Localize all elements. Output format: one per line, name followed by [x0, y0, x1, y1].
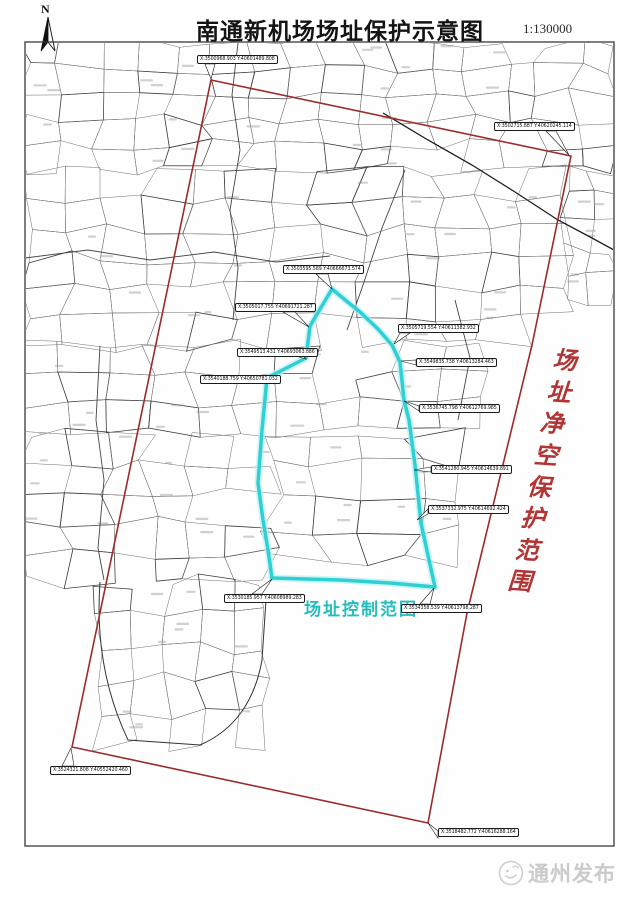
coordinate-callout-control: X:3503595.589 Y:40666673.574	[283, 265, 364, 274]
watermark: 通州发布	[498, 858, 616, 888]
coordinate-callout-clearance: X:3500968.903 Y:40601489.808	[197, 55, 278, 64]
coordinate-callout-control: X:3549513.431 Y:40693063.886	[237, 348, 318, 357]
clearance-zone-label-char: 围	[507, 561, 533, 598]
coordinate-callout-control: X:3536745.798 Y:40612769.985	[419, 404, 500, 413]
map-frame: X:3500968.903 Y:40601489.808X:3502715.88…	[0, 0, 640, 905]
publisher-logo-icon	[498, 860, 524, 886]
coordinate-callout-clearance: X:3518482.772 Y:40616288.164	[438, 828, 519, 837]
coordinate-callout-control: X:3540188.759 Y:40650781.032	[200, 375, 281, 384]
coordinate-callout-clearance: X:3524321.808 Y:40552420.460	[50, 766, 131, 775]
watermark-text: 通州发布	[528, 858, 616, 888]
clearance-zone-label-char: 空	[533, 435, 559, 472]
coordinate-callout-control: X:3537332.975 Y:40614692.424	[428, 505, 509, 514]
coordinate-callout-clearance: X:3502715.887 Y:40620245.114	[494, 122, 575, 131]
coordinate-callout-control: X:3541280.945 Y:40614639.891	[431, 465, 512, 474]
clearance-zone-label-char: 净	[539, 403, 565, 440]
clearance-zone-label-char: 场	[552, 340, 578, 377]
coordinate-callout-control: X:3505017.755 Y:40691721.287	[235, 303, 316, 312]
coordinate-callout-control: X:3505719.554 Y:40611382.932	[398, 324, 479, 333]
coordinate-callout-control: X:3549835.738 Y:40613284.463	[416, 358, 497, 367]
map-page: N 南通新机场场址保护示意图 1:130000 X:3500968.903 Y:…	[0, 0, 640, 905]
clearance-zone-label-char: 护	[520, 498, 546, 535]
coordinate-callout-control: X:3534358.539 Y:40613798.287	[401, 604, 482, 613]
coordinate-callout-control: X:3530185.957 Y:40608989.283	[224, 594, 305, 603]
